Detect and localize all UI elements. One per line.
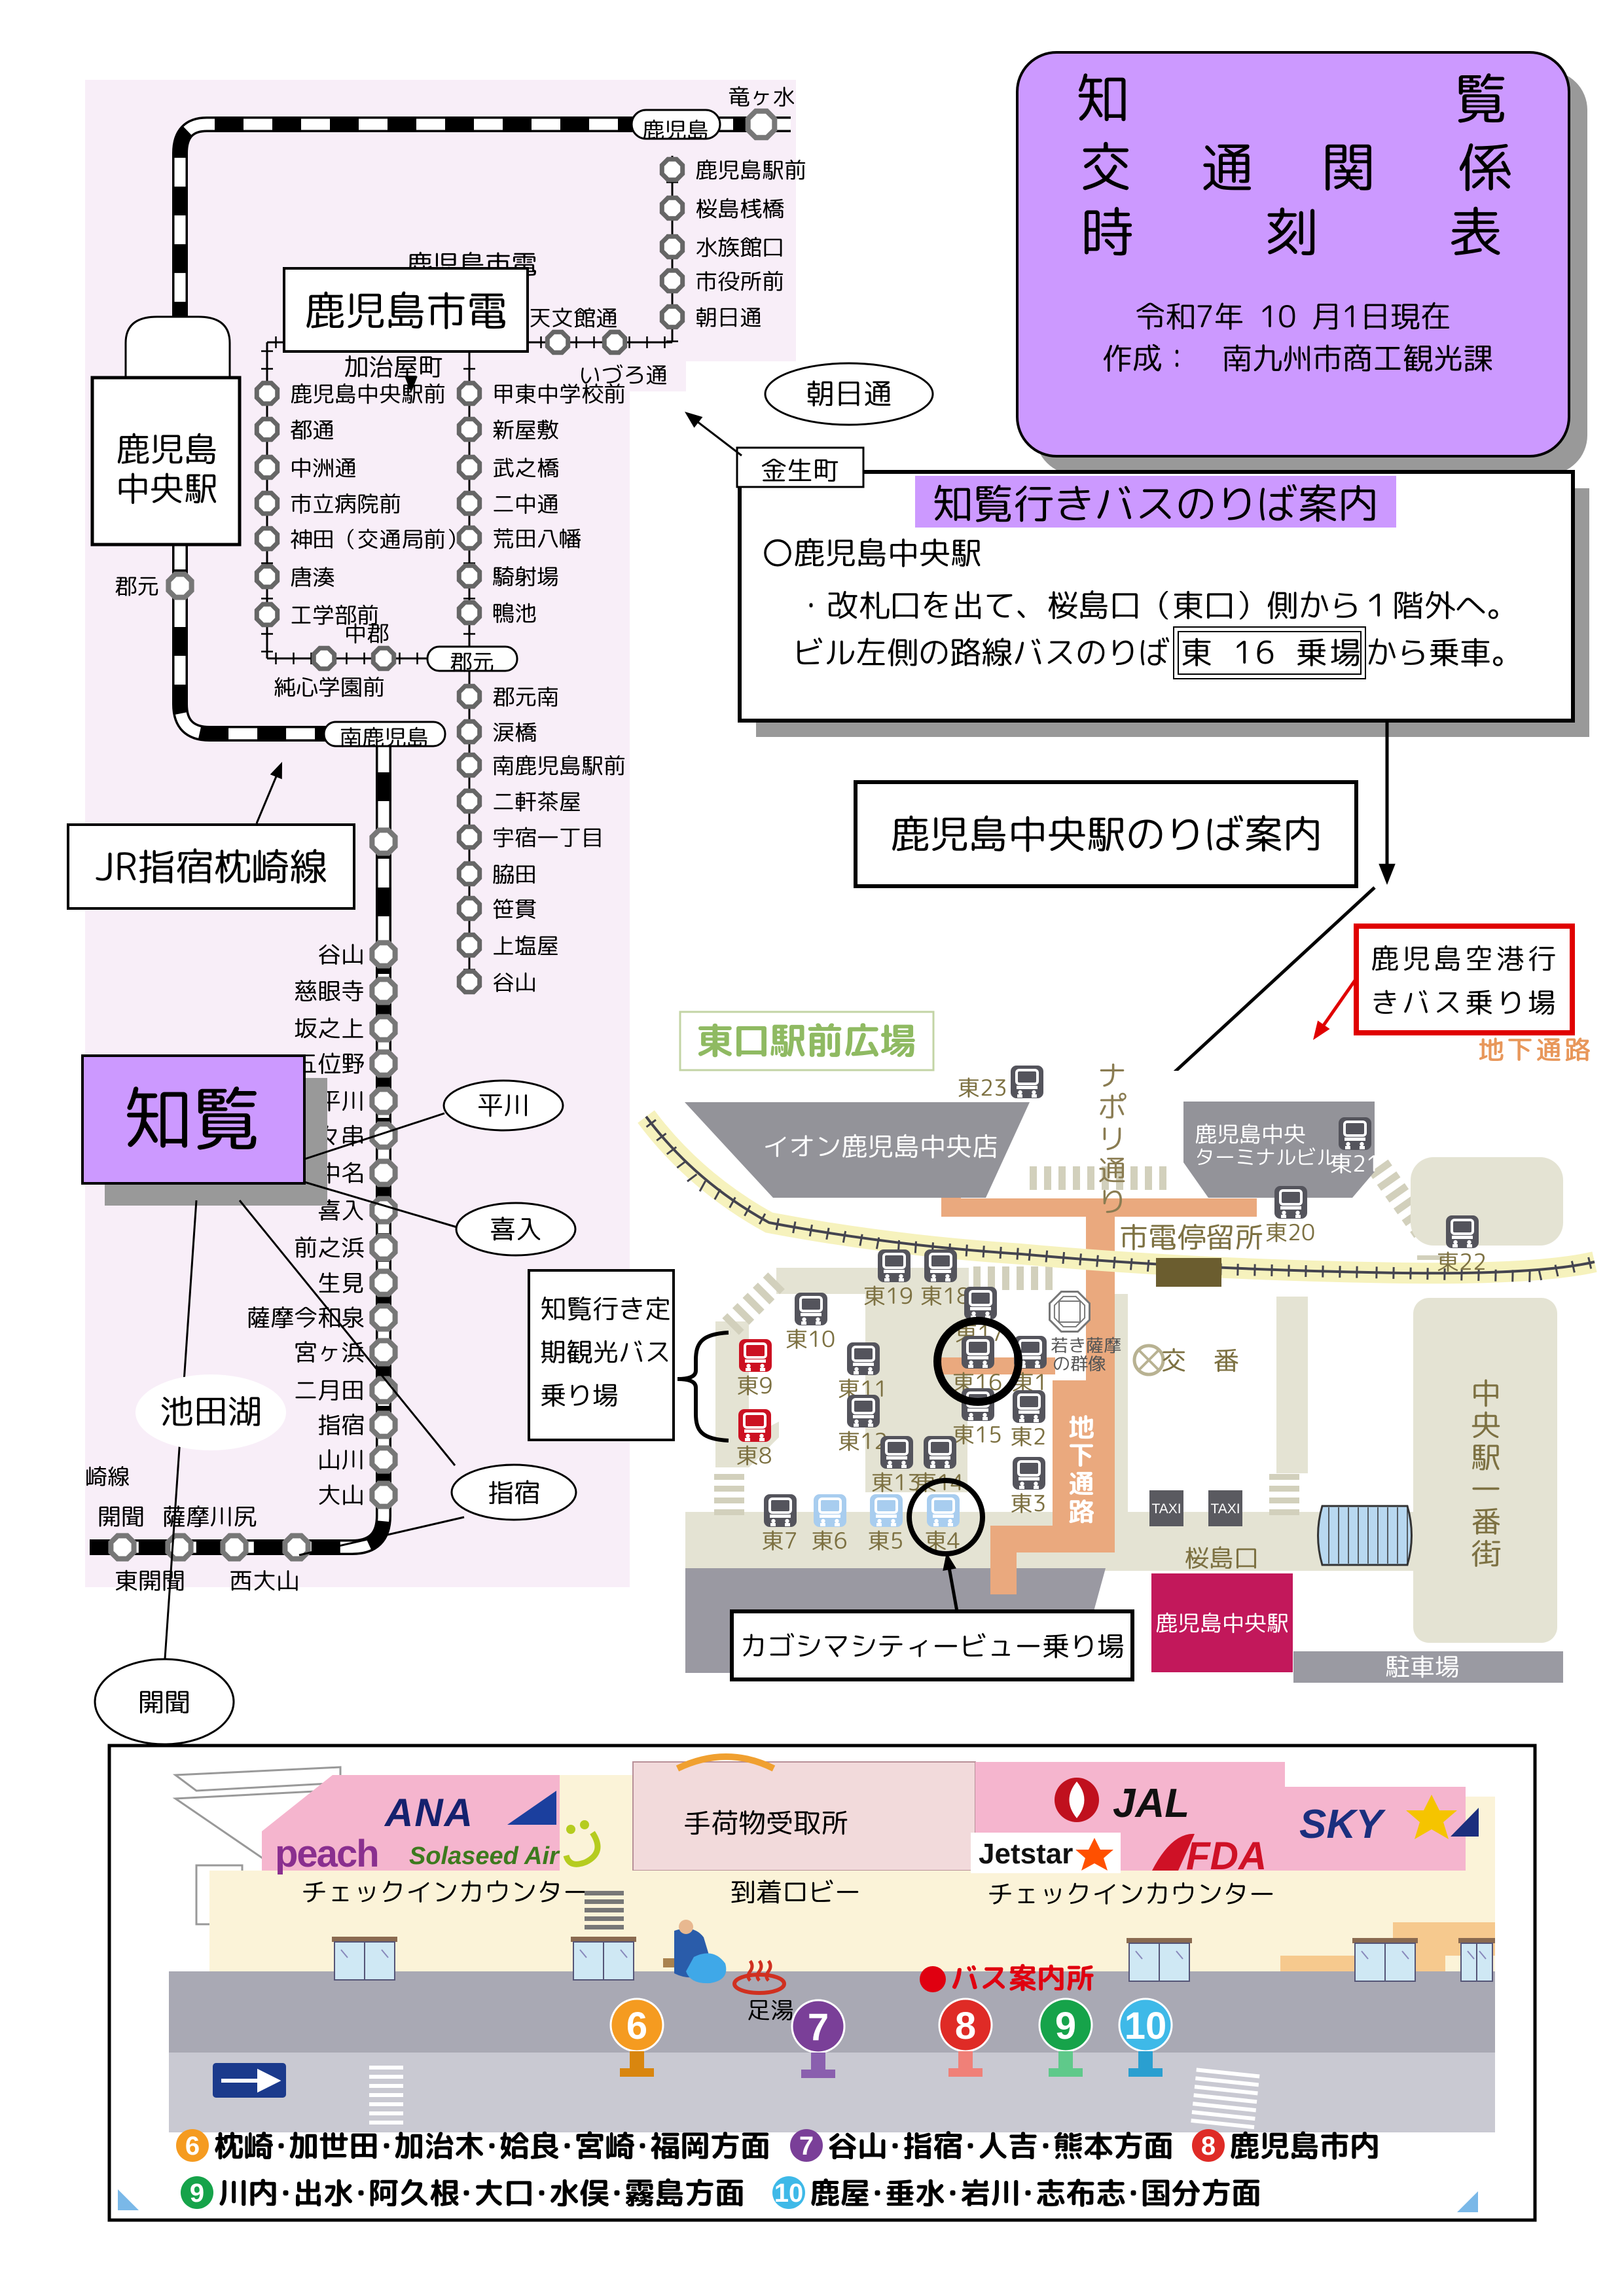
svg-text:FDA: FDA — [1186, 1834, 1267, 1878]
svg-text:8: 8 — [1201, 2132, 1216, 2161]
svg-text:TAXI: TAXI — [1210, 1501, 1240, 1516]
svg-text:TAXI: TAXI — [1151, 1501, 1181, 1516]
svg-text:9: 9 — [190, 2179, 204, 2208]
svg-text:SKY: SKY — [1299, 1802, 1386, 1847]
svg-text:6: 6 — [185, 2132, 200, 2161]
svg-text:peach: peach — [275, 1833, 378, 1875]
svg-text:ANA: ANA — [384, 1791, 474, 1835]
svg-text:7: 7 — [808, 2006, 829, 2049]
svg-text:Jetstar: Jetstar — [979, 1838, 1073, 1870]
svg-text:JAL: JAL — [1113, 1781, 1189, 1826]
svg-text:7: 7 — [799, 2132, 814, 2161]
svg-text:8: 8 — [955, 2005, 976, 2047]
svg-text:6: 6 — [626, 2005, 647, 2047]
svg-text:10: 10 — [1125, 2005, 1167, 2047]
svg-text:9: 9 — [1055, 2005, 1076, 2047]
svg-text:Solaseed Air: Solaseed Air — [409, 1842, 560, 1870]
svg-text:10: 10 — [774, 2179, 804, 2208]
